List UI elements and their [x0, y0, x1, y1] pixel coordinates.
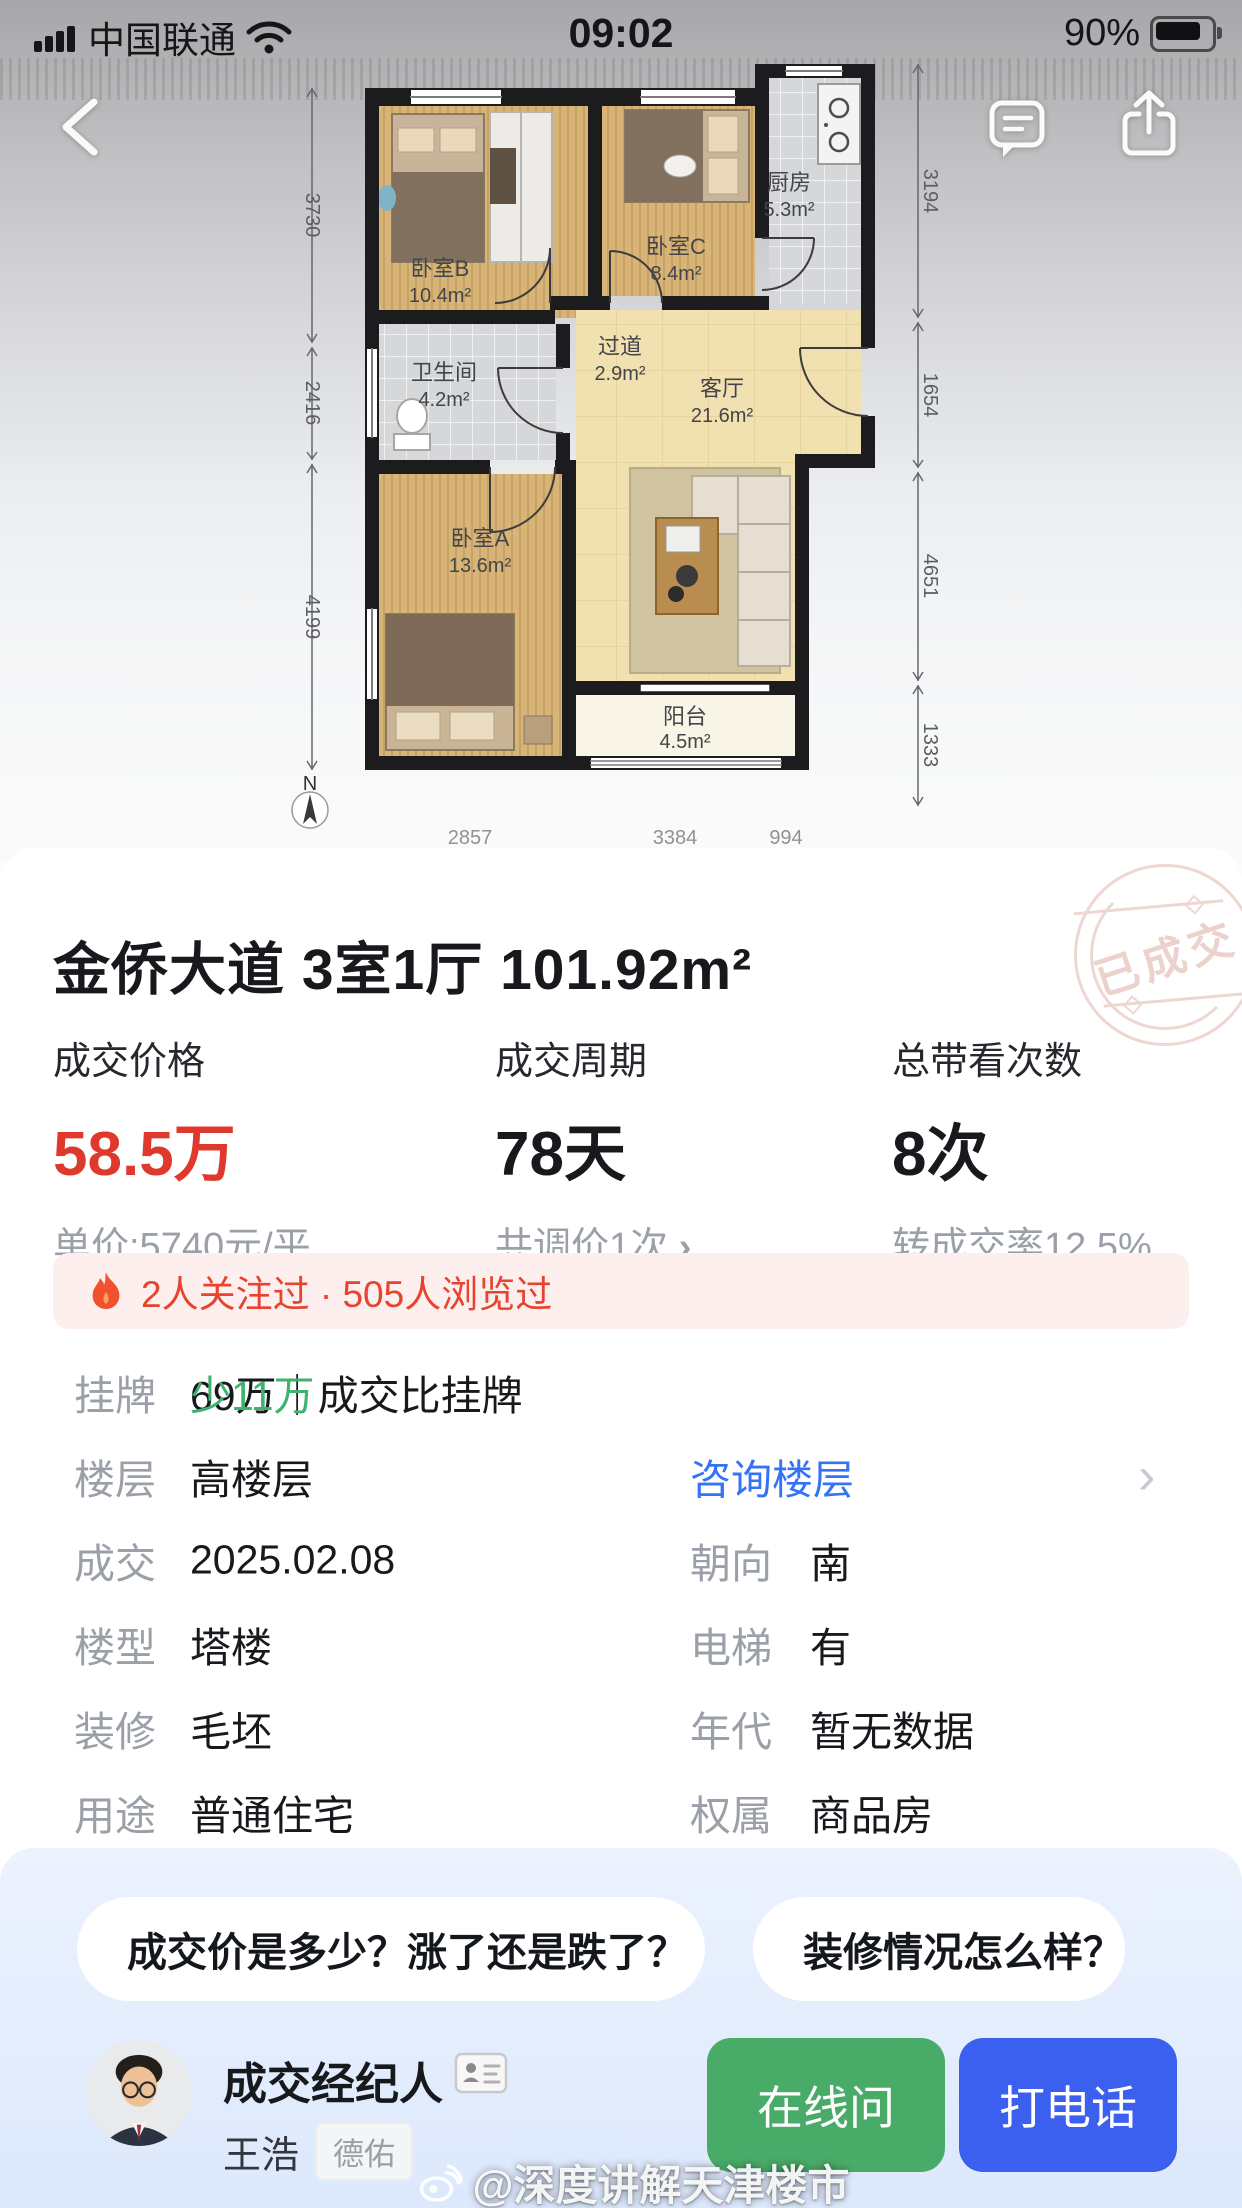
- agent-name[interactable]: 王浩: [223, 2124, 299, 2179]
- ask-floor-link[interactable]: 咨询楼层: [690, 1446, 854, 1506]
- room-label-balcony: 阳台: [663, 704, 707, 729]
- row-label: 权属: [690, 1782, 772, 1842]
- share-button[interactable]: [1116, 88, 1182, 160]
- row-label: 年代: [690, 1698, 772, 1758]
- back-button[interactable]: [48, 92, 118, 162]
- stat-label: 成交周期: [495, 1030, 691, 1085]
- room-area-bath: 4.2m²: [418, 389, 469, 411]
- floor-value: 高楼层: [190, 1446, 313, 1506]
- dim-right-2: 1654: [919, 373, 941, 418]
- qa-chip-text: 成交价是多少？涨了还是跌了？: [127, 1920, 687, 1978]
- row-label: 朝向: [690, 1530, 772, 1590]
- row-value: 2025.02.08: [190, 1537, 395, 1584]
- battery-icon: [1150, 16, 1216, 52]
- dim-left-2: 2416: [301, 381, 323, 426]
- room-label-corridor: 过道: [598, 334, 642, 359]
- stat-deal-cycle: 成交周期 78天 共调价1次 ›: [495, 1030, 691, 1270]
- room-area-living: 21.6m²: [691, 405, 754, 427]
- room-label-living: 客厅: [700, 376, 744, 401]
- agent-role-label: 成交经纪人: [223, 2048, 443, 2112]
- chevron-right-icon[interactable]: ›: [1138, 1446, 1155, 1506]
- call-button[interactable]: 打电话: [959, 2038, 1177, 2172]
- room-label-bedroomA: 卧室A: [451, 526, 510, 551]
- room-label-bedroomB: 卧室B: [411, 256, 470, 281]
- row-label: 装修: [74, 1698, 156, 1758]
- agent-avatar[interactable]: [86, 2040, 192, 2146]
- stat-label: 成交价格: [53, 1030, 311, 1085]
- floorplan-image[interactable]: 卧室B 10.4m² 卧室C 8.4m² 厨房 5.3m² 卫生间 4.2m² …: [280, 48, 960, 853]
- battery-percent: 90%: [1064, 12, 1140, 55]
- dim-left-3: 4199: [301, 595, 323, 640]
- showings-value: 8次: [892, 1103, 1152, 1193]
- dim-right-1: 3194: [919, 169, 941, 214]
- row-value: 暂无数据: [810, 1698, 974, 1758]
- room-area-balcony: 4.5m²: [659, 731, 710, 753]
- room-area-corridor: 2.9m²: [594, 363, 645, 385]
- room-label-bath: 卫生间: [411, 360, 477, 385]
- dim-left-1: 3730: [301, 193, 323, 238]
- watermark: @深度讲解天津楼市: [418, 2152, 849, 2208]
- popularity-banner: 2人关注过 · 505人浏览过: [53, 1253, 1189, 1329]
- row-floor: 楼层 高楼层 咨询楼层 ›: [53, 1435, 1189, 1519]
- deal-cycle-value: 78天: [495, 1103, 691, 1193]
- detail-rows: 挂牌 69万｜成交比挂牌少11万 楼层 高楼层 咨询楼层 › 成交 2025.0…: [53, 1351, 1189, 1852]
- app-screen: 中国联通 09:02 90%: [0, 0, 1242, 2208]
- dim-bottom-1: 2857: [448, 827, 493, 849]
- row-deal-date: 成交 2025.02.08 朝向 南: [53, 1519, 1189, 1603]
- row-value: 有: [810, 1614, 851, 1674]
- row-value: 南: [810, 1530, 851, 1590]
- row-label: 楼型: [74, 1614, 156, 1674]
- feedback-bubble-button[interactable]: [986, 96, 1048, 162]
- compass-north: N: [292, 773, 328, 828]
- price-drop-highlight: 少11万: [190, 1362, 315, 1422]
- qa-chip-price[interactable]: 成交价是多少？涨了还是跌了？: [77, 1897, 705, 2001]
- svg-text:N: N: [303, 773, 317, 795]
- listing-title: 金侨大道 3室1厅 101.92m²: [53, 924, 752, 1006]
- row-decoration: 装修 毛坯 年代 暂无数据: [53, 1687, 1189, 1771]
- qa-chip-decoration[interactable]: 装修情况怎么样？: [753, 1897, 1125, 2001]
- row-value: 毛坯: [190, 1698, 272, 1758]
- room-label-bedroomC: 卧室C: [646, 234, 706, 259]
- row-building-type: 楼型 塔楼 电梯 有: [53, 1603, 1189, 1687]
- floorplan-photo-area[interactable]: 中国联通 09:02 90%: [0, 0, 1242, 880]
- row-value: 普通住宅: [190, 1782, 354, 1842]
- row-usage: 用途 普通住宅 权属 商品房: [53, 1771, 1189, 1852]
- room-area-bedroomB: 10.4m²: [409, 285, 472, 307]
- row-label: 用途: [74, 1782, 156, 1842]
- room-area-bedroomA: 13.6m²: [449, 555, 512, 577]
- agent-name-row: 王浩 德佑: [223, 2122, 413, 2181]
- stat-showings: 总带看次数 8次 转成交率12.5%: [892, 1030, 1152, 1270]
- stat-deal-price: 成交价格 58.5万 单价:5740元/平: [53, 1030, 311, 1270]
- row-label: 挂牌: [74, 1362, 156, 1422]
- stat-label: 总带看次数: [892, 1030, 1152, 1085]
- deal-price-value: 58.5万: [53, 1103, 311, 1193]
- listing-card: 已成交 金侨大道 3室1厅 101.92m² 成交价格 58.5万 单价:574…: [0, 848, 1242, 1852]
- watermark-text: @深度讲解天津楼市: [472, 2152, 849, 2208]
- popularity-text: 2人关注过 · 505人浏览过: [141, 1264, 552, 1318]
- dimension-lines-left: [307, 88, 317, 770]
- row-label: 成交: [74, 1530, 156, 1590]
- dim-right-4: 1333: [919, 723, 941, 768]
- dim-bottom-2: 3384: [653, 827, 698, 849]
- row-listed-price: 挂牌 69万｜成交比挂牌少11万: [53, 1351, 1189, 1435]
- room-label-kitchen: 厨房: [767, 170, 811, 195]
- room-area-kitchen: 5.3m²: [763, 199, 814, 221]
- agent-company-tag: 德佑: [315, 2122, 413, 2181]
- row-label: 楼层: [74, 1446, 156, 1506]
- flame-icon: [89, 1270, 123, 1312]
- agent-id-badge-icon: [452, 2044, 510, 2102]
- qa-chip-text: 装修情况怎么样？: [803, 1920, 1123, 1978]
- row-value: 商品房: [810, 1782, 933, 1842]
- row-label: 电梯: [690, 1614, 772, 1674]
- dim-bottom-3: 994: [769, 827, 802, 849]
- sold-stamp-text: 已成交: [1085, 902, 1242, 1008]
- row-value: 塔楼: [190, 1614, 272, 1674]
- weibo-icon: [418, 2163, 462, 2203]
- room-area-bedroomC: 8.4m²: [650, 263, 701, 285]
- dim-right-3: 4651: [919, 554, 941, 599]
